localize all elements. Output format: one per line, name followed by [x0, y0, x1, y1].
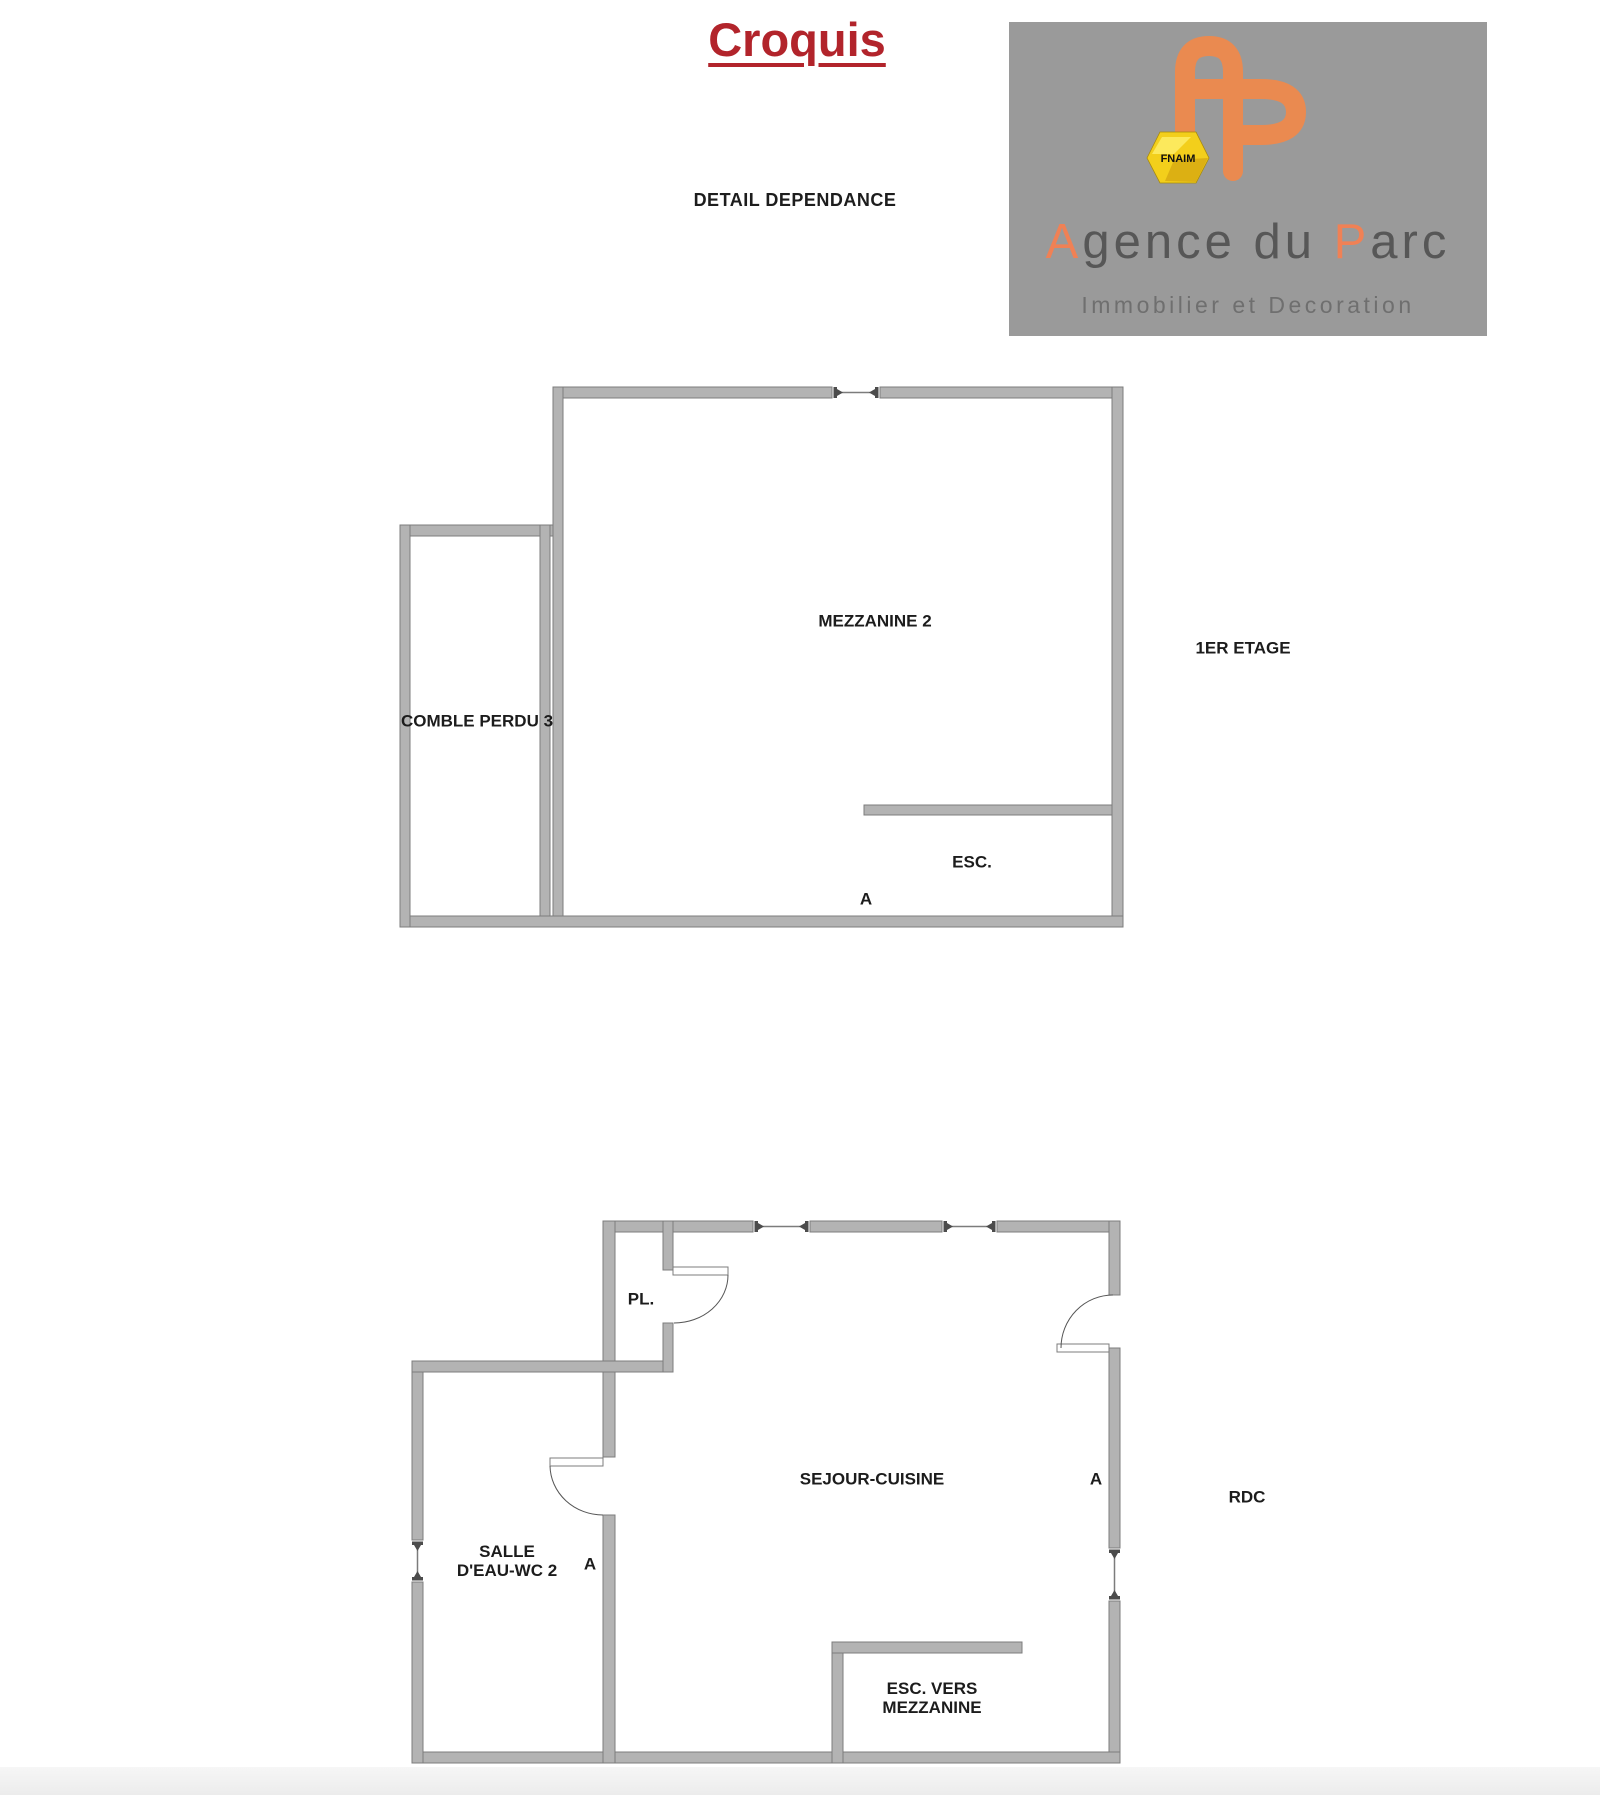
door-swing-arc [674, 1275, 728, 1323]
wall-end-marker [1109, 1590, 1120, 1600]
room-label: ESC. VERSMEZZANINE [882, 1679, 981, 1717]
wall-end-marker [1109, 1550, 1120, 1560]
wall-segment [412, 1361, 673, 1372]
page-bottom-shadow [0, 1767, 1600, 1795]
room-label: A [1090, 1469, 1102, 1488]
stair-ledge [864, 805, 1112, 815]
agency-name-initial-p: P [1334, 215, 1371, 269]
door-leaf [550, 1458, 603, 1466]
door-swing-arc [1061, 1295, 1113, 1348]
wall-segment [603, 1515, 615, 1763]
wall-segment [603, 1221, 753, 1232]
wall-segment [400, 916, 1123, 927]
wall-end-marker [834, 387, 844, 398]
wall-segment [412, 1361, 423, 1540]
agency-name: Agence du Parc [1009, 214, 1487, 270]
wall-end-marker [755, 1221, 765, 1232]
room-label: COMBLE PERDU 3 [401, 711, 553, 730]
room-label: SALLED'EAU-WC 2 [457, 1542, 557, 1580]
fnaim-label: FNAIM [1161, 153, 1196, 165]
wall-end-marker [799, 1221, 809, 1232]
agency-name-part2: arc [1370, 215, 1450, 269]
wall-segment [1109, 1601, 1120, 1763]
door-swing-arc [550, 1466, 603, 1515]
floor-name-label: RDC [1229, 1487, 1266, 1506]
room-label: A [860, 889, 872, 908]
wall-segment [1109, 1221, 1120, 1295]
wall-segment [1109, 1348, 1120, 1548]
door-leaf [673, 1267, 728, 1275]
wall-segment [603, 1221, 615, 1361]
room-label: A [584, 1554, 596, 1573]
wall-segment [663, 1323, 673, 1372]
wall-segment [553, 387, 832, 398]
wall-end-marker [412, 1571, 423, 1581]
agency-logo-panel: FNAIM Agence du Parc Immobilier et Decor… [1009, 22, 1487, 336]
room-label: MEZZANINE 2 [818, 611, 931, 630]
wall-segment [603, 1372, 615, 1457]
wall-end-marker [986, 1221, 996, 1232]
wall-segment [832, 1642, 843, 1763]
ap-monogram-icon: FNAIM [1139, 30, 1324, 188]
wall-segment [412, 1582, 423, 1763]
wall-segment [832, 1642, 1022, 1653]
wall-segment [880, 387, 1123, 398]
wall-segment [553, 387, 563, 927]
plan-first-floor: MEZZANINE 2COMBLE PERDU 3ESC.A1ER ETAGE [400, 387, 1291, 927]
agency-name-part1: gence du [1082, 215, 1333, 269]
wall-segment [997, 1221, 1120, 1232]
wall-segment [412, 1752, 1120, 1763]
door-leaf [1057, 1344, 1109, 1352]
wall-segment [1112, 387, 1123, 927]
wall-end-marker [944, 1221, 954, 1232]
wall-segment [810, 1221, 942, 1232]
fnaim-gem-icon: FNAIM [1147, 132, 1209, 183]
floor-name-label: 1ER ETAGE [1195, 638, 1290, 657]
wall-end-marker [869, 387, 879, 398]
wall-segment [400, 525, 553, 536]
room-label: PL. [628, 1289, 654, 1308]
wall-end-marker [412, 1542, 423, 1552]
plan-ground-floor: PL.SEJOUR-CUISINEASALLED'EAU-WC 2AESC. V… [412, 1221, 1265, 1763]
agency-tagline: Immobilier et Decoration [1009, 292, 1487, 319]
agency-name-initial-a: A [1046, 215, 1083, 269]
room-label: SEJOUR-CUISINE [800, 1469, 945, 1488]
room-label: ESC. [952, 852, 992, 871]
wall-segment [663, 1221, 673, 1270]
